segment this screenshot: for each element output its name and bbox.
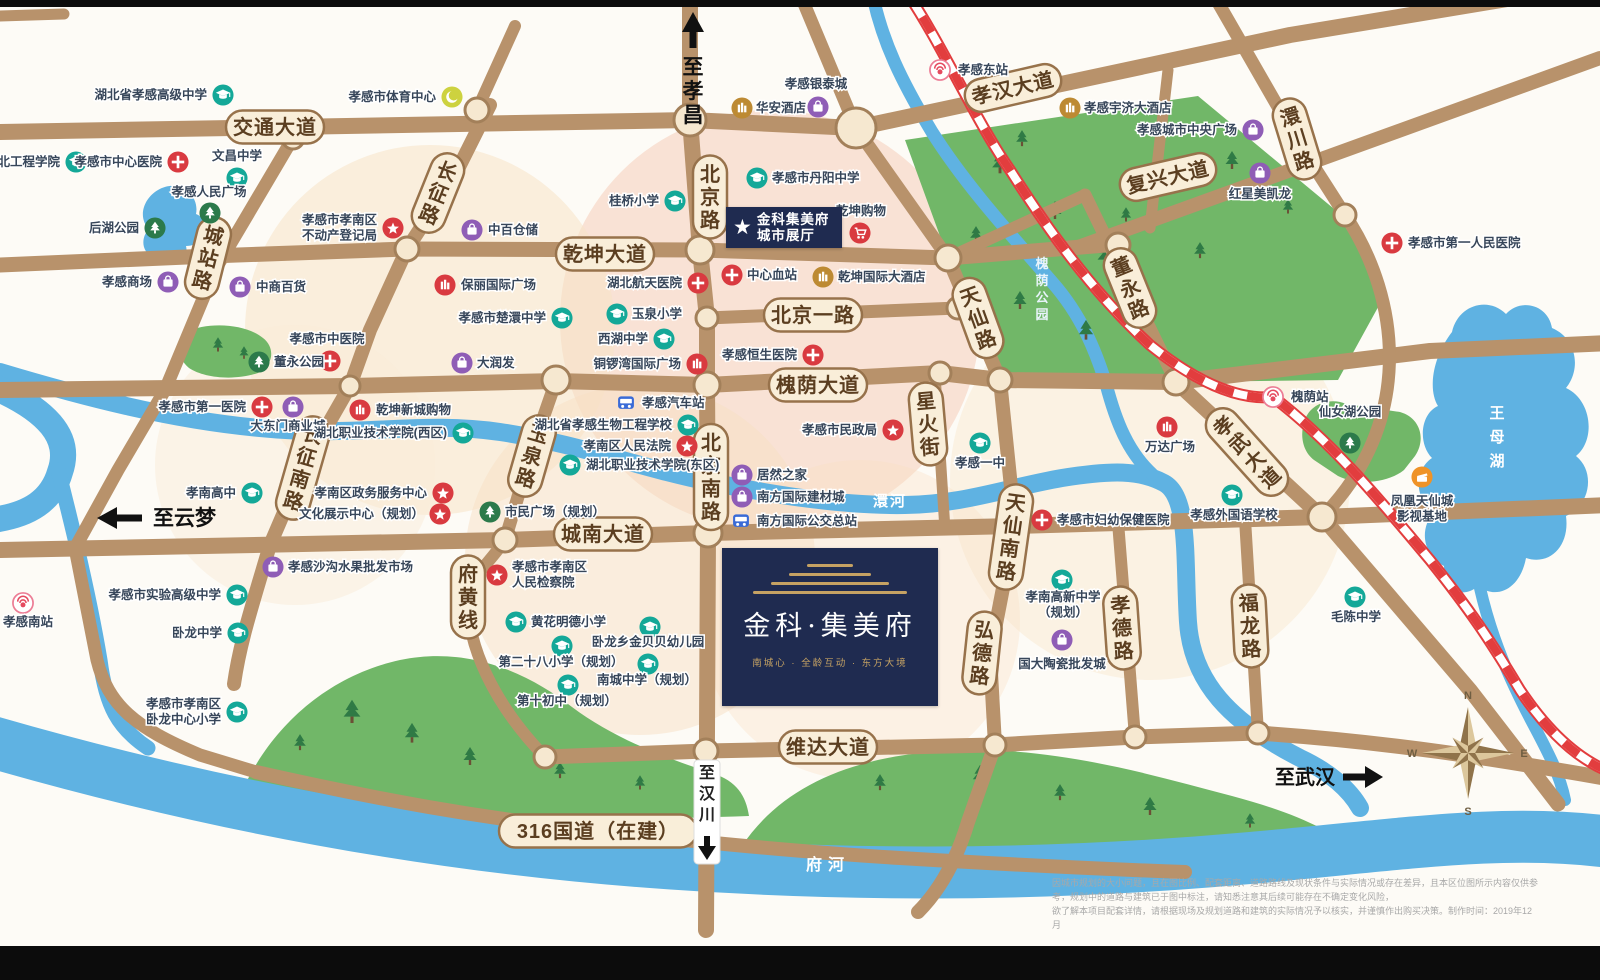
svg-text:316国道（在建）: 316国道（在建） (517, 819, 679, 843)
poi-label: 孝感市中医院 (288, 331, 365, 346)
poi-label: 孝南区政务服务中心 (313, 485, 427, 500)
svg-text:交通大道: 交通大道 (233, 115, 317, 139)
mallR-icon (686, 353, 707, 374)
poi-label: 孝感一中 (954, 455, 1005, 470)
road-junction (395, 237, 419, 261)
road-label: 城南大道 (554, 518, 652, 551)
feature-label: 母 (1489, 429, 1504, 446)
hotel-icon (812, 266, 833, 287)
poi-label: 湖北省孝感高级中学 (94, 87, 207, 102)
poi-label: 万达广场 (1144, 439, 1195, 454)
svg-text:路: 路 (1113, 638, 1136, 663)
road-junction (686, 236, 714, 264)
poi: 孝感市第一人民医院 (1381, 232, 1521, 253)
park-icon (248, 351, 269, 372)
direction-arrow: 至孝昌 (682, 12, 704, 127)
poi-label: 湖北职业技术学院(东区) (586, 457, 719, 472)
svg-text:北: 北 (701, 432, 721, 455)
gov-icon (432, 482, 453, 503)
poi-label: 黄花明德小学 (531, 614, 607, 629)
poi-label: 保丽国际广场 (460, 277, 536, 292)
svg-text:街: 街 (918, 434, 941, 460)
road-label: 乾坤大道 (556, 238, 654, 271)
feature-label: 府河 (806, 855, 850, 874)
mallP-icon (282, 396, 303, 417)
mallR-icon (434, 274, 455, 295)
bus-icon (618, 396, 634, 409)
school-icon (505, 611, 526, 632)
svg-text:昌: 昌 (683, 104, 704, 127)
feature-label: 澴河 (873, 492, 907, 510)
hosp-icon (687, 272, 708, 293)
poi-label: 国大陶瓷批发城 (1018, 656, 1106, 671)
school-icon (551, 307, 572, 328)
park-icon (199, 202, 220, 223)
park-icon (144, 217, 165, 238)
star-icon: ★ (733, 217, 752, 238)
svg-text:汉: 汉 (699, 784, 716, 803)
svg-text:川: 川 (698, 807, 715, 824)
poi-label: 人民检察院 (512, 575, 575, 590)
road-label: 府黄线 (451, 556, 485, 639)
gov-icon (882, 419, 903, 440)
school-icon (969, 432, 990, 453)
mallP-icon (451, 352, 472, 373)
svg-text:京: 京 (700, 185, 720, 209)
park-icon (1339, 432, 1360, 453)
poi-label: 孝感城市中央广场 (1136, 122, 1237, 137)
svg-text:维达大道: 维达大道 (786, 735, 870, 759)
school-icon (746, 167, 767, 188)
road-junction (493, 528, 517, 552)
hosp-icon (802, 344, 823, 365)
poi: 孝感市中心医院 (73, 151, 188, 172)
bus-icon (733, 514, 749, 527)
poi-label: 后湖公园 (89, 220, 139, 235)
poi-label: 乾坤购物 (836, 203, 887, 218)
mallP-icon (1051, 629, 1072, 650)
direction-arrow: 至云梦 (97, 507, 217, 530)
hotel-icon (731, 97, 752, 118)
road-junction (1247, 722, 1269, 744)
school-icon (227, 622, 248, 643)
poi-label: （规划） (1038, 605, 1088, 620)
station-icon (930, 60, 950, 80)
poi-label: 湖北省孝感生物工程学校 (534, 417, 672, 432)
svg-text:府: 府 (458, 562, 478, 586)
svg-text:路: 路 (968, 663, 991, 689)
map-canvas: 交通大道乾坤大道北京一路槐荫大道城南大道维达大道316国道（在建）孝汉大道复兴大… (0, 0, 1600, 980)
svg-text:弘: 弘 (973, 618, 995, 643)
station-icon (13, 593, 33, 613)
poi-label: 第二十八小学（规划） (498, 654, 623, 669)
poi-label: 华安酒店 (756, 100, 807, 115)
letterbox-top (0, 0, 1600, 7)
mallP-icon (229, 276, 250, 297)
poi-label: 孝感市孝南区 (511, 559, 588, 574)
poi-label: 孝感南站 (2, 614, 54, 629)
gov-icon (676, 435, 697, 456)
road-junction (929, 362, 951, 384)
svg-text:路: 路 (701, 500, 722, 524)
map-disclaimer: 因城市规划的大小问题，且在图比例、配套距离、道路路线及现状条件与实际情况或存在差… (1052, 876, 1538, 932)
poi-label: 孝南区人民法院 (582, 438, 671, 453)
feature-label: 园 (1035, 307, 1048, 322)
poi-label: 市民广场（规划） (505, 504, 605, 519)
poi-label: 文化展示中心（规划） (299, 506, 424, 521)
svg-text:线: 线 (458, 608, 478, 632)
road-label: 北京南路 (694, 424, 728, 530)
svg-text:E: E (1520, 748, 1527, 760)
exhibition-hall-label: 城市展厅 (757, 228, 830, 244)
poi-label: 孝感汽车站 (641, 395, 705, 410)
poi-label: 孝感市妇幼保健医院 (1056, 512, 1170, 527)
poi-label: 湖北工程学院 (0, 154, 60, 169)
mallP-icon (461, 219, 482, 240)
mallP-icon (807, 96, 828, 117)
disclaimer-line: 因城市规划的大小问题，且在图比例、配套距离、道路路线及现状条件与实际情况或存在差… (1052, 876, 1538, 904)
svg-text:至: 至 (699, 764, 715, 782)
feature-label: 王 (1489, 405, 1504, 422)
poi-label: 孝感宇济大酒店 (1083, 100, 1172, 115)
project-slogan: 南城心 · 全龄互动 · 东方大境 (722, 655, 938, 669)
svg-text:N: N (1464, 690, 1472, 702)
school-icon (677, 414, 698, 435)
cart-icon (849, 222, 870, 243)
mallP-icon (1249, 162, 1270, 183)
road-label: 316国道（在建） (499, 815, 697, 848)
school-icon (559, 454, 580, 475)
river (0, 386, 63, 520)
poi-label: 毛陈中学 (1331, 609, 1382, 624)
svg-text:火: 火 (917, 412, 940, 437)
svg-text:孝: 孝 (683, 79, 704, 103)
school-icon (664, 190, 685, 211)
school-icon (551, 635, 572, 656)
hosp-icon (1381, 232, 1402, 253)
gov-icon (486, 564, 507, 585)
svg-text:城南大道: 城南大道 (561, 522, 645, 546)
school-icon (1051, 569, 1072, 590)
poi-label: 孝南高中 (185, 485, 236, 500)
poi-label: 孝感市楚澴中学 (457, 310, 546, 325)
road-label: 北京一路 (764, 299, 862, 332)
poi-label: 槐荫站 (1290, 389, 1329, 404)
school-icon (226, 701, 247, 722)
feature-label: 槐 (1034, 256, 1048, 271)
svg-text:至: 至 (683, 56, 704, 79)
road-label: 星火街 (907, 381, 948, 467)
river (58, 470, 148, 748)
project-logo-card: 金科·集美府 南城心 · 全龄互动 · 东方大境 (722, 548, 938, 706)
poi: 卧龙中学 (172, 622, 249, 643)
school-icon (212, 84, 233, 105)
poi: 孝感市实验高级中学 (107, 584, 247, 605)
road-junction (694, 739, 718, 763)
poi-label: 红星美凯龙 (1229, 186, 1292, 201)
svg-text:S: S (1464, 806, 1471, 818)
poi-label: 孝感沙沟水果批发市场 (287, 559, 413, 574)
road-junction (465, 98, 489, 122)
road-junction (694, 372, 720, 398)
poi-label: 卧龙中学 (172, 625, 223, 640)
svg-text:至武汉: 至武汉 (1275, 766, 1336, 789)
svg-text:北: 北 (700, 163, 720, 186)
hosp-icon (1031, 509, 1052, 530)
mallP-icon (1242, 119, 1263, 140)
poi-label: 铜锣湾国际广场 (593, 356, 681, 371)
poi-label: 仙女湖公园 (1319, 404, 1382, 419)
school-icon (637, 653, 658, 674)
poi-label: 孝南高新中学 (1024, 589, 1101, 604)
school-icon (653, 328, 674, 349)
svg-text:南: 南 (998, 536, 1021, 562)
poi-label: 孝感市中心医院 (73, 154, 162, 169)
mallR-icon (349, 399, 370, 420)
poi-label: 中商百货 (256, 279, 307, 294)
poi-label: 孝感恒生医院 (721, 347, 798, 362)
poi-label: 孝感市第一医院 (157, 399, 246, 414)
poi-label: 孝感市民政局 (801, 422, 877, 437)
poi-label: 孝感市丹阳中学 (771, 170, 860, 185)
svg-text:至云梦: 至云梦 (153, 507, 217, 530)
poi: 孝感商场 (101, 271, 179, 292)
svg-text:槐荫大道: 槐荫大道 (775, 373, 860, 397)
direction-arrow: 至汉川 (694, 760, 720, 864)
poi: 后湖公园 (89, 217, 166, 238)
road-label: 北京路 (693, 156, 727, 239)
letterbox-bottom (0, 946, 1600, 980)
mallP-icon (731, 486, 752, 507)
poi-label: 凤凰天仙城 (1391, 493, 1454, 508)
poi-label: 董永公园 (274, 354, 324, 369)
poi-label: 孝感市体育中心 (347, 89, 436, 104)
svg-text:W: W (1407, 748, 1418, 760)
poi: 湖北省孝感高级中学 (94, 84, 233, 105)
park-icon (479, 501, 500, 522)
hotel-icon (1059, 97, 1080, 118)
station-icon (1263, 387, 1283, 407)
road-junction (836, 108, 876, 148)
poi-label: 孝感人民广场 (170, 184, 246, 199)
road-path (477, 26, 515, 110)
road-junction (542, 366, 570, 394)
poi-label: 孝感东站 (957, 62, 1009, 77)
school-icon (557, 674, 578, 695)
svg-text:路: 路 (1241, 636, 1263, 661)
poi-label: 桂桥小学 (608, 193, 660, 208)
svg-text:南: 南 (701, 478, 721, 501)
svg-text:孝: 孝 (1109, 593, 1132, 617)
road-junction (1308, 503, 1336, 531)
road-junction (984, 734, 1006, 756)
feature-label: 公 (1035, 290, 1048, 305)
school-icon (1221, 484, 1242, 505)
poi: 毛陈中学 (1331, 586, 1382, 624)
road-label: 槐荫大道 (769, 369, 867, 402)
road-path (0, 14, 64, 16)
svg-text:天: 天 (1004, 492, 1028, 517)
road-label: 孝德路 (1102, 585, 1142, 670)
sport-icon (441, 86, 462, 107)
exhibition-hall-marker: ★ 金科集美府 城市展厅 (726, 207, 842, 248)
mallP-icon (157, 271, 178, 292)
svg-text:路: 路 (700, 208, 721, 232)
school-icon (606, 303, 627, 324)
poi-label: 孝感市孝南区 (301, 212, 378, 227)
poi-label: 南方国际公交总站 (757, 513, 858, 528)
poi-label: 孝感市实验高级中学 (107, 587, 221, 602)
poi-label: 孝感银泰城 (784, 76, 848, 91)
poi: 孝感南站 (2, 593, 54, 629)
gov-icon (429, 503, 450, 524)
road-label: 维达大道 (779, 731, 877, 764)
poi-label: 南城中学（规划） (597, 672, 697, 687)
svg-text:福: 福 (1237, 592, 1259, 616)
poi-label: 西湖中学 (598, 331, 649, 346)
poi-label: 乾坤新城购物 (376, 402, 452, 417)
gov-icon (382, 217, 403, 238)
poi-label: 卧龙乡金贝贝幼儿园 (592, 634, 705, 649)
mallP-icon (731, 464, 752, 485)
road-junction (1124, 726, 1146, 748)
poi-label: 孝感市第一人民医院 (1407, 235, 1521, 250)
school-icon (1344, 586, 1365, 607)
location-map: 交通大道乾坤大道北京一路槐荫大道城南大道维达大道316国道（在建）孝汉大道复兴大… (0, 0, 1600, 980)
poi-label: 中心血站 (747, 267, 798, 282)
hosp-icon (251, 396, 272, 417)
poi-label: 湖北职业技术学院(西区) (314, 425, 447, 440)
poi-label: 孝感市孝南区 (145, 696, 222, 711)
mallP-icon (262, 556, 283, 577)
svg-text:北京一路: 北京一路 (771, 303, 855, 327)
poi-label: 居然之家 (757, 467, 808, 482)
poi-label: 文昌中学 (212, 148, 263, 163)
road-label: 福龙路 (1231, 584, 1269, 669)
road-junction (340, 376, 360, 396)
poi-label: 玉泉小学 (632, 306, 683, 321)
exhibition-hall-name: 金科集美府 (757, 212, 830, 228)
poi-label: 卧龙中心小学 (146, 712, 222, 727)
poi: 孝感市体育中心 (347, 86, 462, 107)
school-icon (452, 422, 473, 443)
logo-emblem-icon (750, 564, 910, 594)
poi: 文昌中学 (212, 148, 263, 189)
poi-label: 影视基地 (1397, 509, 1448, 524)
mallR-icon (1156, 416, 1177, 437)
feature-label: 荫 (1035, 273, 1048, 288)
svg-text:乾坤大道: 乾坤大道 (563, 242, 647, 266)
disclaimer-line: 欲了解本项目配套详情，请根据现场及规划道路和建筑的实际情况予以核实，并谨慎作出购… (1052, 904, 1538, 932)
road-label: 交通大道 (226, 111, 324, 144)
road-junction (696, 307, 718, 329)
road-junction (988, 368, 1012, 392)
poi-label: 乾坤国际大酒店 (838, 269, 926, 284)
road-junction (935, 245, 961, 271)
movie-icon (1411, 466, 1432, 487)
poi-label: 大润发 (477, 355, 515, 370)
school-icon (241, 482, 262, 503)
hosp-icon (721, 264, 742, 285)
direction-arrow: 至武汉 (1275, 766, 1383, 789)
poi: 孝感市孝南区卧龙中心小学 (145, 696, 248, 727)
svg-text:星: 星 (915, 389, 937, 414)
poi-label: 中百仓储 (488, 222, 539, 237)
poi-label: 南方国际建材城 (757, 489, 845, 504)
svg-text:德: 德 (971, 640, 993, 666)
poi-label: 湖北航天医院 (607, 275, 683, 290)
poi: 孝感汽车站 (618, 395, 705, 410)
poi-label: 孝感商场 (101, 274, 152, 289)
feature-label: 湖 (1489, 453, 1504, 470)
poi-label: 第十初中（规划） (517, 693, 617, 708)
project-title: 金科·集美府 (722, 604, 938, 643)
road-junction (1334, 204, 1356, 226)
svg-text:仙: 仙 (1001, 512, 1024, 539)
road-junction (534, 746, 556, 768)
svg-text:德: 德 (1111, 615, 1133, 640)
svg-text:龙: 龙 (1239, 613, 1260, 638)
school-icon (226, 584, 247, 605)
svg-text:黄: 黄 (458, 585, 478, 609)
hosp-icon (167, 151, 188, 172)
poi-label: 不动产登记局 (302, 228, 377, 243)
poi-label: 孝感外国语学校 (1189, 507, 1278, 522)
